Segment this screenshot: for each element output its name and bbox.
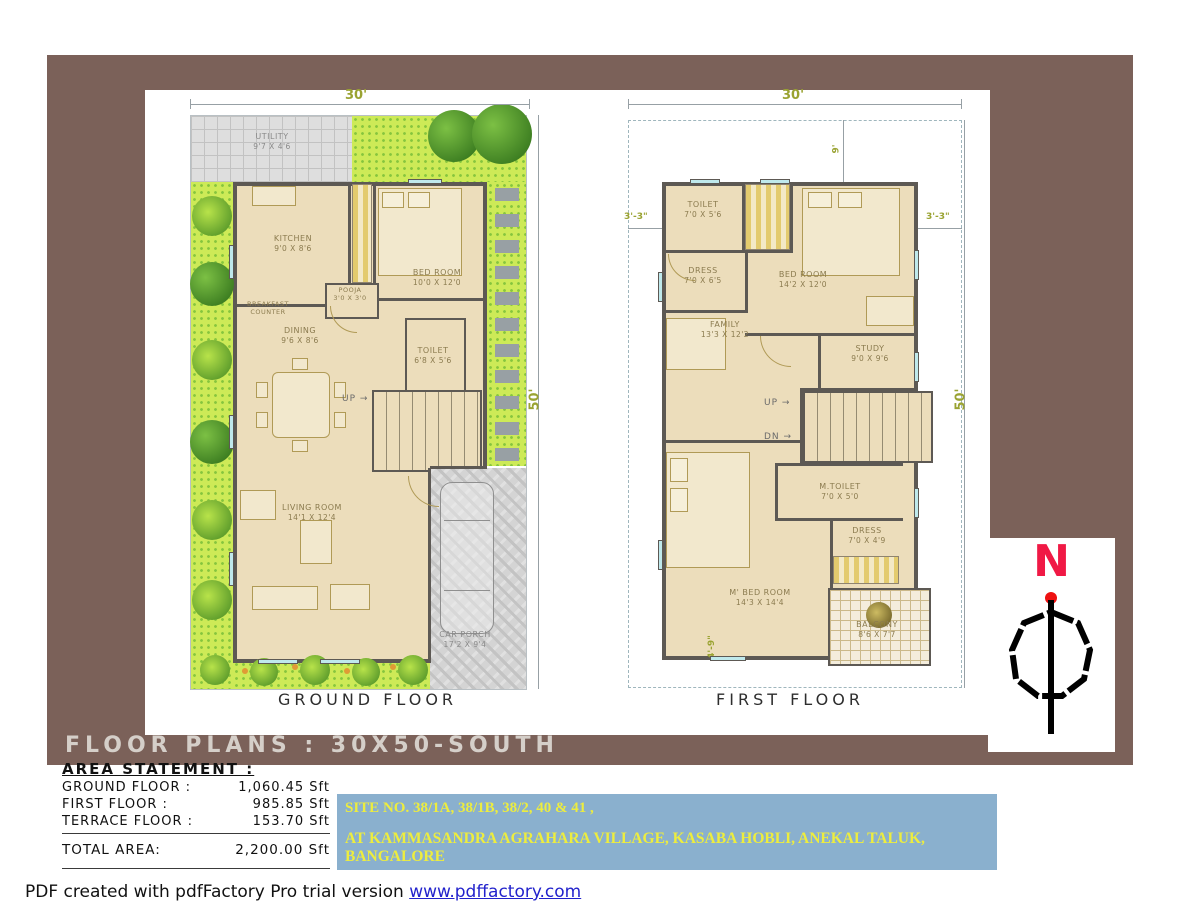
room-label-mbedroom: M' BED ROOM14'3 X 14'4 — [700, 588, 820, 608]
window-icon — [690, 179, 720, 184]
shrub-icon — [200, 655, 230, 685]
window-icon — [710, 656, 746, 661]
area-row-value: 985.85 Sft — [253, 797, 330, 812]
first-dim-width: 30' — [782, 88, 804, 103]
room-label-pooja: POOJA3'0 X 3'0 — [327, 286, 373, 303]
area-total-value: 2,200.00 Sft — [235, 842, 330, 858]
room-label-kitchen: KITCHEN9'0 X 8'6 — [248, 234, 338, 254]
room-label-living: LIVING ROOM14'1 X 12'4 — [262, 503, 362, 523]
shrub-icon — [398, 655, 428, 685]
room-label-mtoilet: M.TOILET7'0 X 5'0 — [790, 482, 890, 502]
room-label-balcony: BALCONY8'6 X 7'7 — [832, 620, 922, 640]
north-label: N — [988, 540, 1115, 584]
compass-icon — [988, 584, 1115, 744]
window-icon — [914, 488, 919, 518]
window-icon — [658, 272, 663, 302]
room-label-first-bedroom: BED ROOM14'2 X 12'0 — [748, 270, 858, 290]
area-row-first: FIRST FLOOR : 985.85 Sft — [62, 797, 330, 812]
pdf-page: FLOOR PLANS : 30X50-SOUTH 30' 50' — [0, 0, 1188, 918]
flower-icon — [390, 664, 396, 670]
room-label-dress1: DRESS7'0 X 6'5 — [668, 266, 738, 286]
area-statement: AREA STATEMENT : GROUND FLOOR : 1,060.45… — [62, 760, 330, 869]
window-icon — [229, 245, 234, 279]
first-dim-left: 3'-3" — [624, 212, 648, 222]
site-address: AT KAMMASANDRA AGRAHARA VILLAGE, KASABA … — [345, 830, 997, 866]
shrub-icon — [192, 500, 232, 540]
first-dim-right: 3'-3" — [926, 212, 950, 222]
room-label-dress2: DRESS7'0 X 4'9 — [836, 526, 898, 546]
first-dim-line-topoffset — [843, 120, 844, 182]
car-windshield — [444, 520, 490, 521]
room-label-breakfast: BREAKFASTCOUNTER — [236, 300, 300, 317]
footer-text: PDF created with pdfFactory Pro trial ve… — [25, 882, 404, 902]
window-icon — [760, 179, 790, 184]
flower-icon — [242, 668, 248, 674]
window-icon — [258, 659, 298, 664]
pdffactory-link[interactable]: www.pdffactory.com — [409, 882, 581, 902]
window-icon — [914, 250, 919, 280]
window-icon — [914, 352, 919, 382]
tree-icon — [190, 262, 234, 306]
room-label-ground-bedroom: BED ROOM10'0 X 12'0 — [392, 268, 482, 288]
flower-icon — [292, 664, 298, 670]
first-dn-label: DN → — [764, 432, 792, 442]
area-statement-heading: AREA STATEMENT : — [62, 760, 330, 778]
stepping-stones — [495, 188, 519, 462]
window-icon — [408, 179, 442, 184]
ground-dim-width: 30' — [345, 88, 367, 103]
pdf-footer: PDF created with pdfFactory Pro trial ve… — [25, 882, 581, 902]
north-compass: N — [988, 538, 1115, 752]
flower-icon — [344, 668, 350, 674]
car-rearline — [444, 590, 490, 591]
site-info-box: SITE NO. 38/1A, 38/1B, 38/2, 40 & 41 , A… — [337, 794, 997, 870]
dim-tick — [190, 99, 191, 109]
ground-dim-line-top — [190, 104, 530, 105]
area-row-ground: GROUND FLOOR : 1,060.45 Sft — [62, 780, 330, 795]
dim-tick — [529, 99, 530, 109]
area-row-label: GROUND FLOOR : — [62, 780, 191, 795]
first-up-label: UP → — [764, 398, 790, 408]
room-label-family: FAMILY13'3 X 12'2 — [680, 320, 770, 340]
first-dim-line-top — [628, 104, 962, 105]
sheet-title: FLOOR PLANS : 30X50-SOUTH — [65, 733, 559, 758]
area-row-total: TOTAL AREA: 2,200.00 Sft — [62, 842, 330, 858]
window-icon — [658, 540, 663, 570]
first-dim-top: 9' — [832, 144, 842, 153]
first-dim-line-right2 — [918, 228, 962, 229]
tree-icon — [472, 104, 532, 164]
ground-up-label: UP → — [342, 394, 368, 404]
area-row-value: 153.70 Sft — [253, 814, 330, 829]
room-label-carporch: CAR PORCH17'2 X 9'4 — [420, 630, 510, 650]
shrub-icon — [192, 196, 232, 236]
shrub-icon — [192, 340, 232, 380]
site-number: SITE NO. 38/1A, 38/1B, 38/2, 40 & 41 , — [345, 800, 594, 817]
dim-tick — [961, 99, 962, 109]
area-row-terrace: TERRACE FLOOR : 153.70 Sft — [62, 814, 330, 829]
tree-icon — [190, 420, 234, 464]
shrub-icon — [192, 580, 232, 620]
dim-tick — [628, 99, 629, 109]
area-row-label: TERRACE FLOOR : — [62, 814, 193, 829]
divider — [62, 833, 330, 834]
area-row-value: 1,060.45 Sft — [238, 780, 330, 795]
room-label-utility: UTILITY9'7 X 4'6 — [212, 132, 332, 152]
window-icon — [229, 552, 234, 586]
room-label-study: STUDY9'0 X 9'6 — [826, 344, 914, 364]
window-icon — [229, 415, 234, 449]
first-dim-height: 50' — [954, 388, 969, 410]
divider — [62, 868, 330, 869]
ground-dim-height: 50' — [528, 388, 543, 410]
first-dim-line-left — [628, 228, 662, 229]
area-total-label: TOTAL AREA: — [62, 842, 161, 858]
ground-floor-caption: GROUND FLOOR — [278, 690, 448, 709]
area-row-label: FIRST FLOOR : — [62, 797, 168, 812]
window-icon — [320, 659, 360, 664]
first-floor-caption: FIRST FLOOR — [705, 690, 875, 709]
room-label-dining: DINING9'6 X 8'6 — [260, 326, 340, 346]
room-label-first-toilet: TOILET7'0 X 5'6 — [668, 200, 738, 220]
room-label-ground-toilet: TOILET6'8 X 5'6 — [406, 346, 460, 366]
